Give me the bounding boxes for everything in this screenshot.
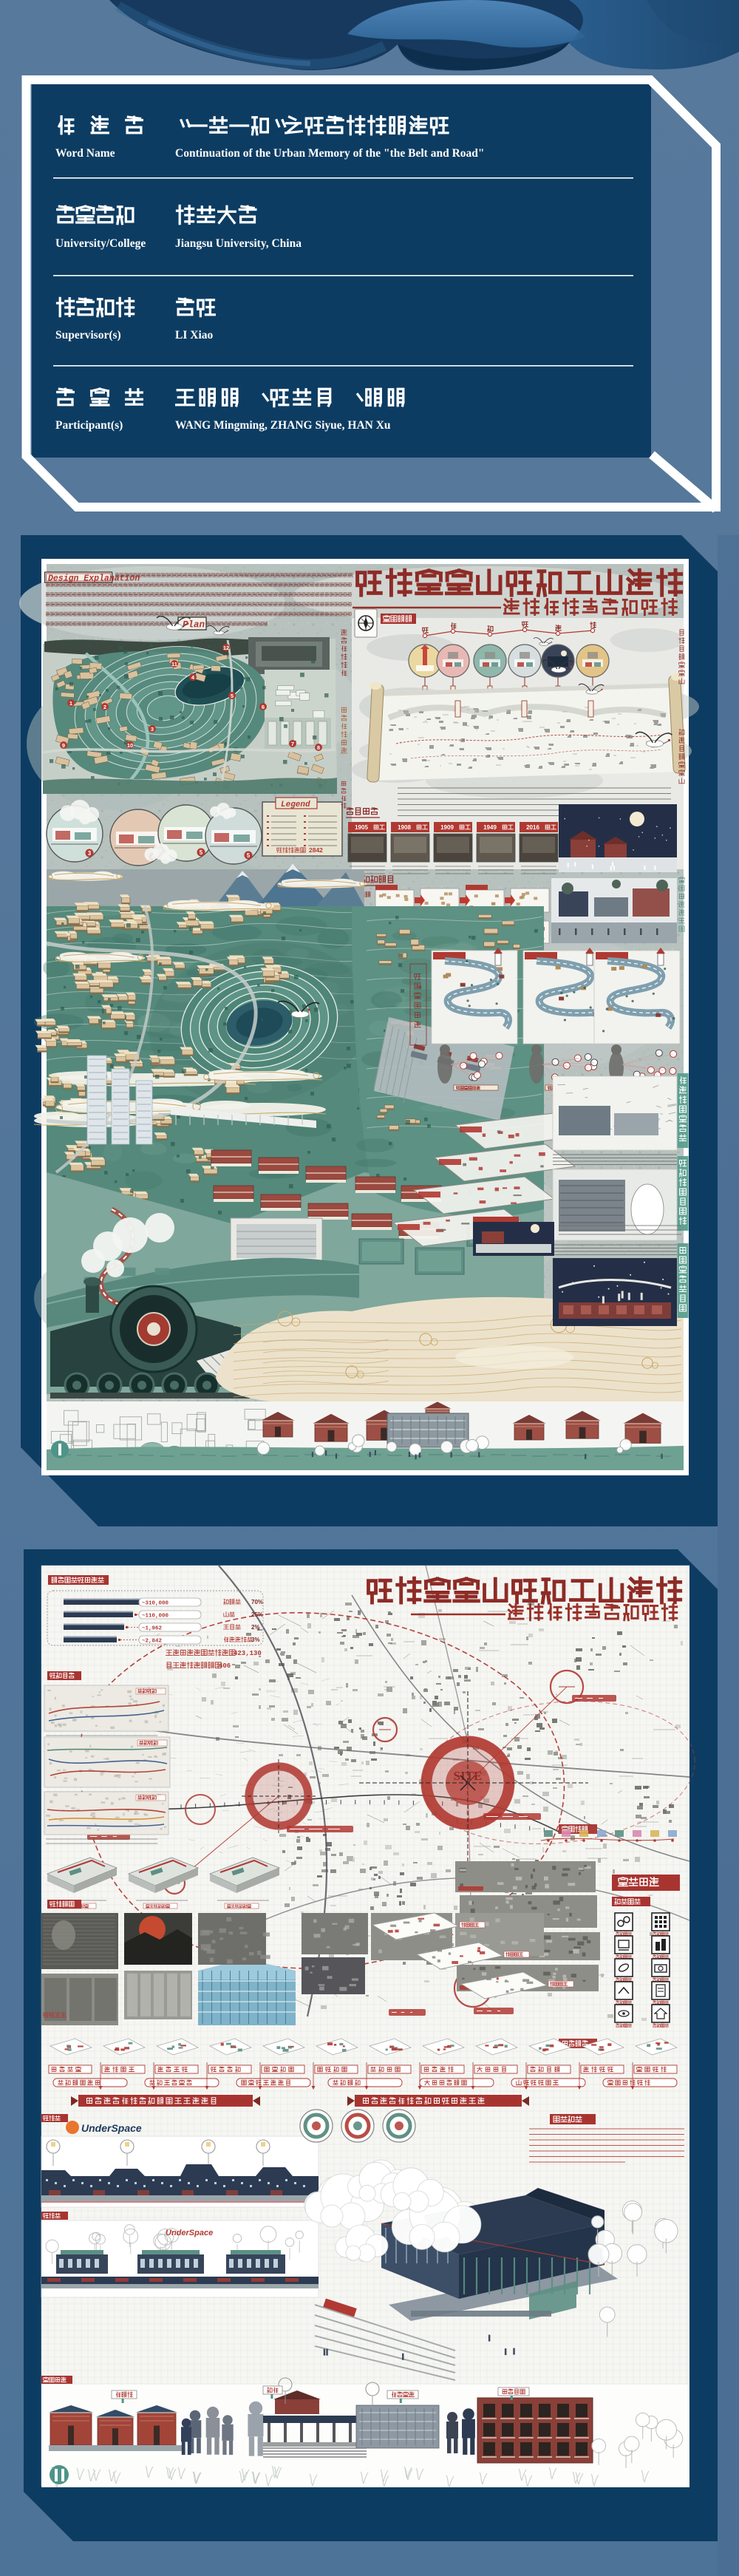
svg-text:2016: 2016: [526, 824, 539, 831]
svg-text:70%: 70%: [251, 1599, 263, 1605]
svg-text:5: 5: [231, 693, 234, 699]
svg-text:2: 2: [103, 704, 106, 710]
svg-text:423,130: 423,130: [234, 1650, 262, 1657]
svg-text:5: 5: [200, 849, 203, 856]
svg-text:8: 8: [317, 744, 320, 751]
svg-text:1905: 1905: [355, 824, 368, 831]
svg-text:1: 1: [69, 700, 72, 707]
svg-text:11: 11: [171, 661, 177, 667]
svg-text:UnderSpace: UnderSpace: [81, 2122, 142, 2134]
svg-text:3%: 3%: [251, 1637, 260, 1643]
svg-text:10: 10: [127, 742, 133, 749]
svg-text:12: 12: [223, 645, 229, 651]
svg-text:~310,000: ~310,000: [142, 1601, 169, 1607]
svg-text:3: 3: [88, 850, 92, 857]
svg-text:Word Name: Word Name: [55, 147, 115, 160]
svg-text:6: 6: [262, 704, 265, 710]
svg-text:Continuation of the Urban Memo: Continuation of the Urban Memory of the …: [175, 147, 485, 160]
svg-text:Legend: Legend: [281, 801, 310, 809]
svg-text:406: 406: [219, 1662, 231, 1670]
svg-text:25%: 25%: [251, 1611, 263, 1618]
svg-text:~1,962: ~1,962: [142, 1626, 163, 1632]
svg-text:1949: 1949: [483, 824, 497, 831]
svg-text:UnderSpace: UnderSpace: [166, 2229, 213, 2237]
svg-text:5: 5: [247, 852, 251, 859]
svg-text:2%: 2%: [251, 1624, 260, 1631]
svg-text:7: 7: [291, 741, 294, 747]
svg-text:Supervisor(s): Supervisor(s): [55, 329, 121, 341]
svg-text:3: 3: [151, 726, 154, 733]
svg-text:~2,842: ~2,842: [142, 1639, 163, 1645]
svg-text:1908: 1908: [398, 824, 411, 831]
svg-text:1909: 1909: [440, 824, 454, 831]
svg-text:LI Xiao: LI Xiao: [175, 329, 213, 341]
svg-text:~110,000: ~110,000: [142, 1614, 169, 1620]
svg-text:2842: 2842: [309, 846, 323, 854]
svg-text:University/College: University/College: [55, 237, 146, 250]
svg-text:WANG Mingming, ZHANG Siyue,: WANG Mingming, ZHANG Siyue, HAN Xu: [175, 419, 391, 432]
svg-text:Jiangsu University, China: Jiangsu University, China: [175, 237, 302, 250]
svg-text:9: 9: [62, 742, 65, 749]
svg-text:Participant(s): Participant(s): [55, 419, 123, 432]
